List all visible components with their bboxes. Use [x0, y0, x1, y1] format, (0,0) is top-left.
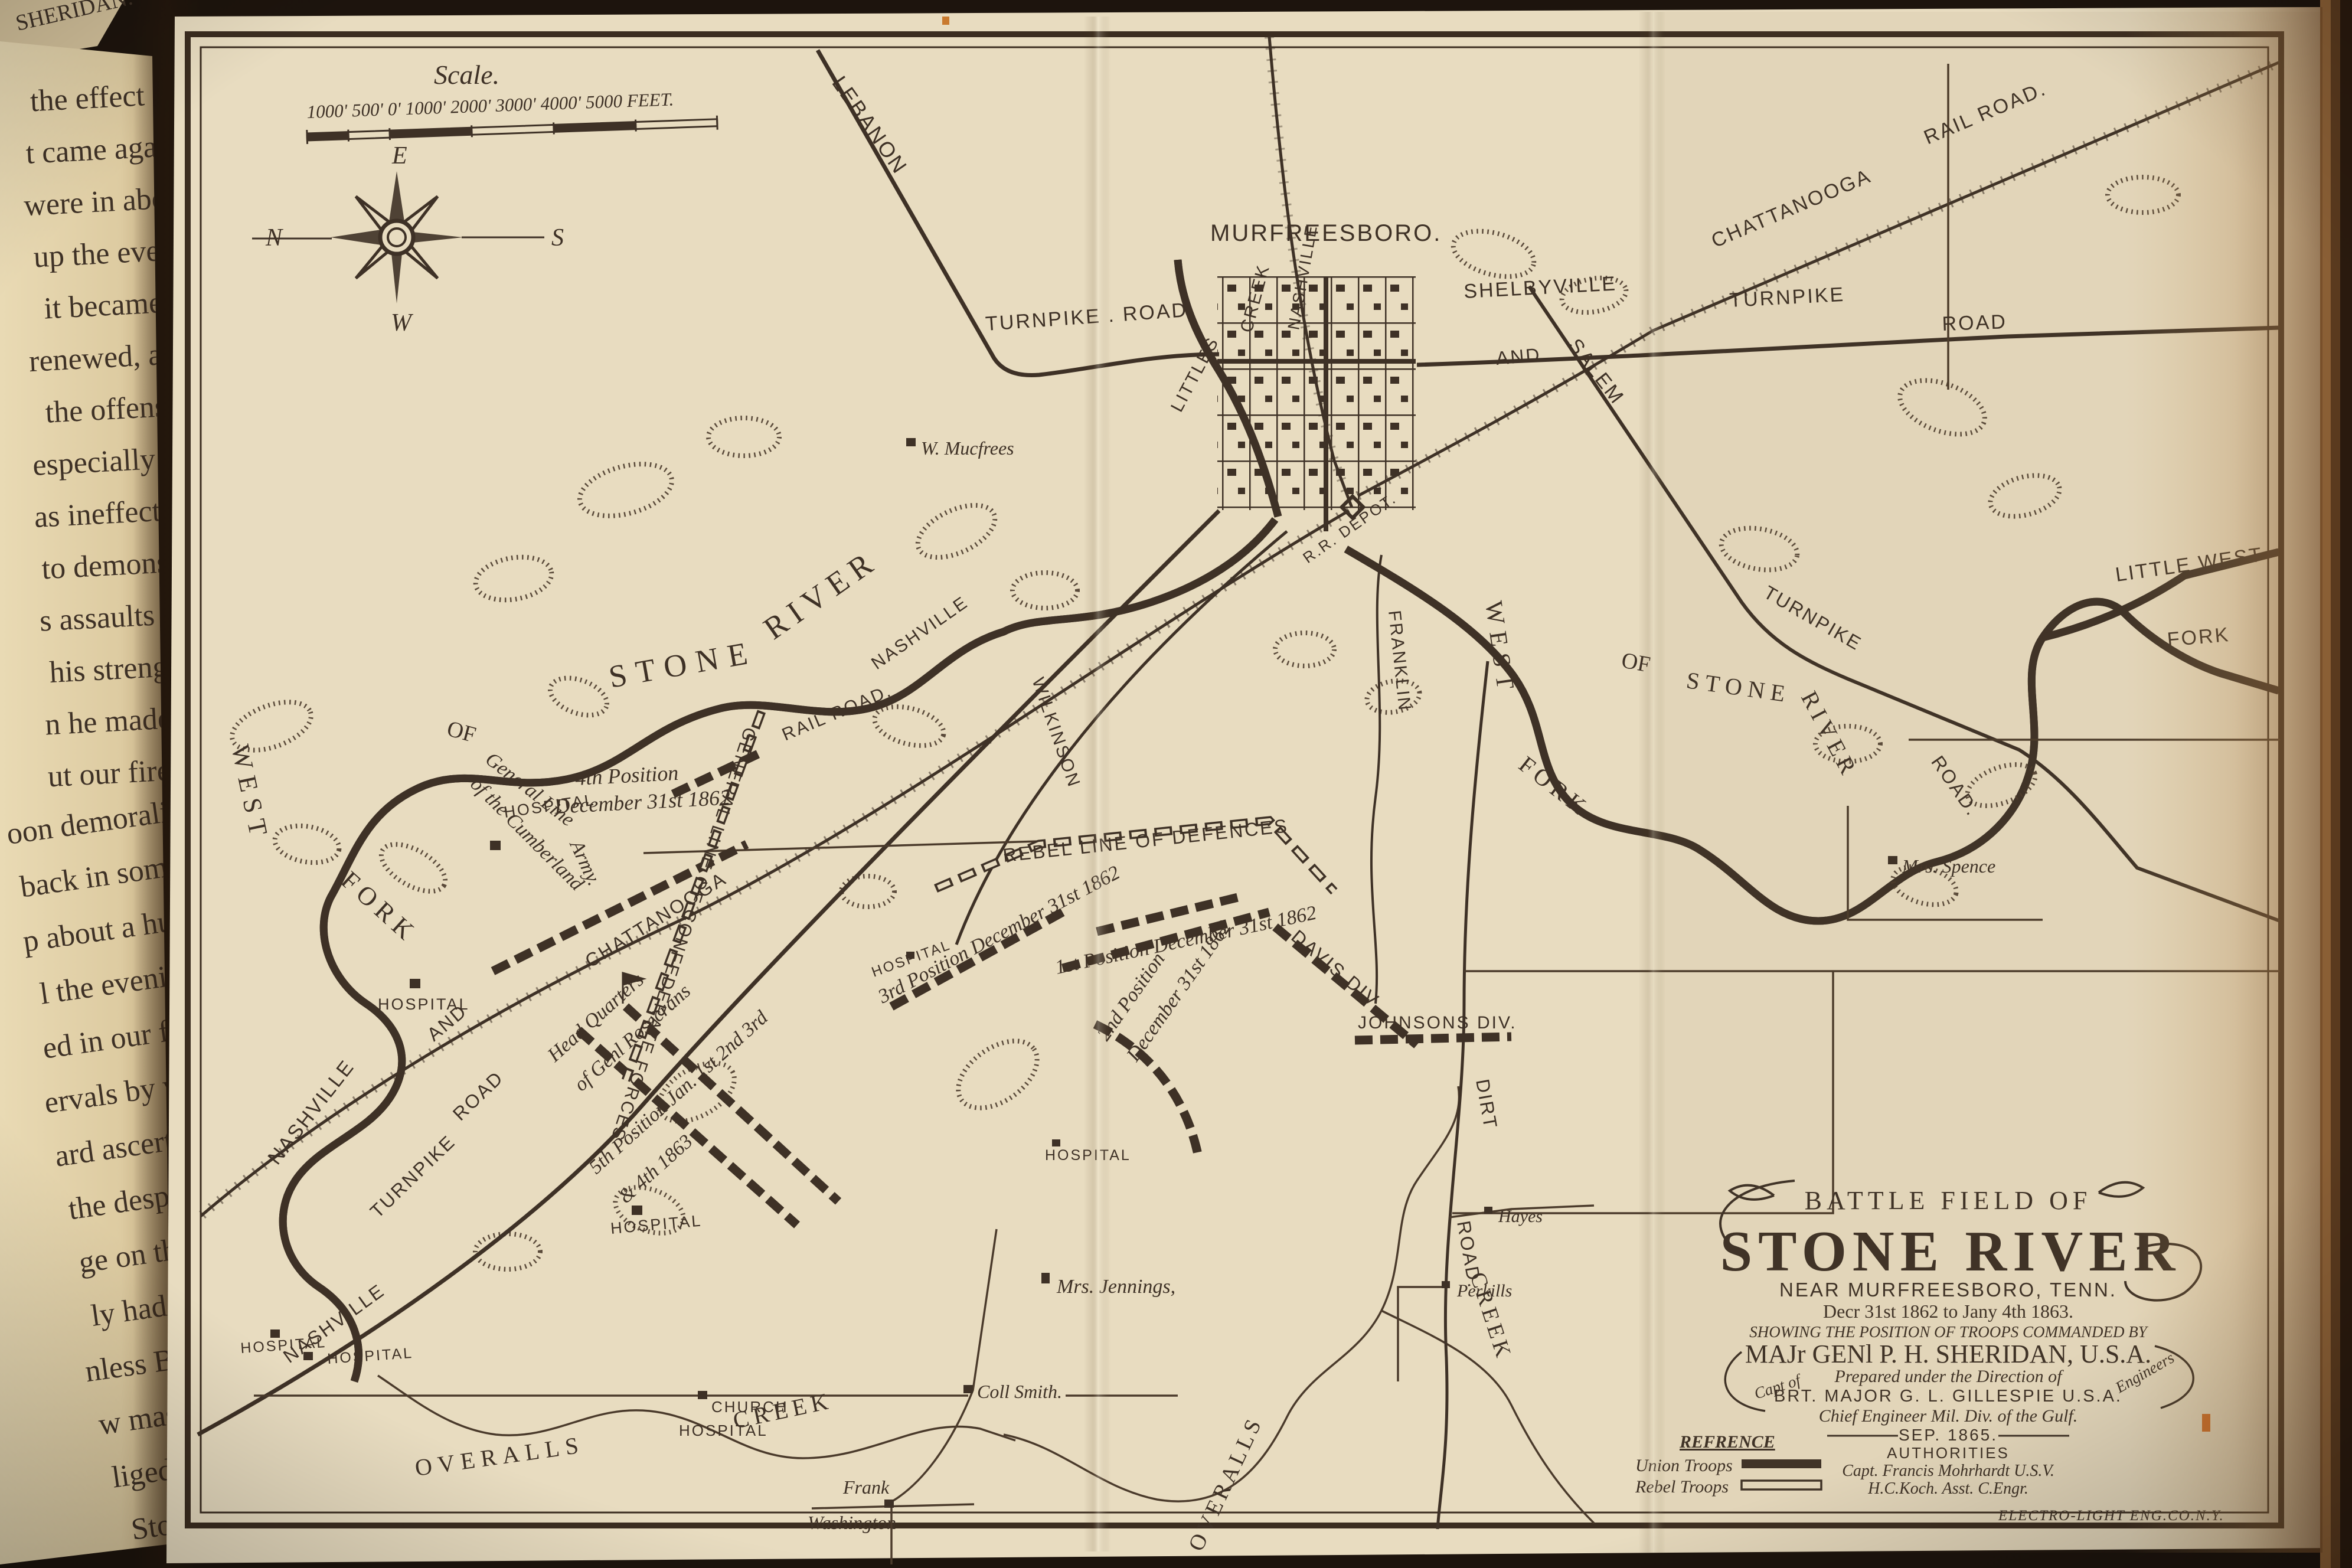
vignette	[0, 0, 2352, 1568]
book-photo: SHERIDAN. the effect of the t came again…	[0, 0, 2352, 1568]
map-plate-svg: SHERIDAN. the effect of the t came again…	[0, 0, 2352, 1568]
